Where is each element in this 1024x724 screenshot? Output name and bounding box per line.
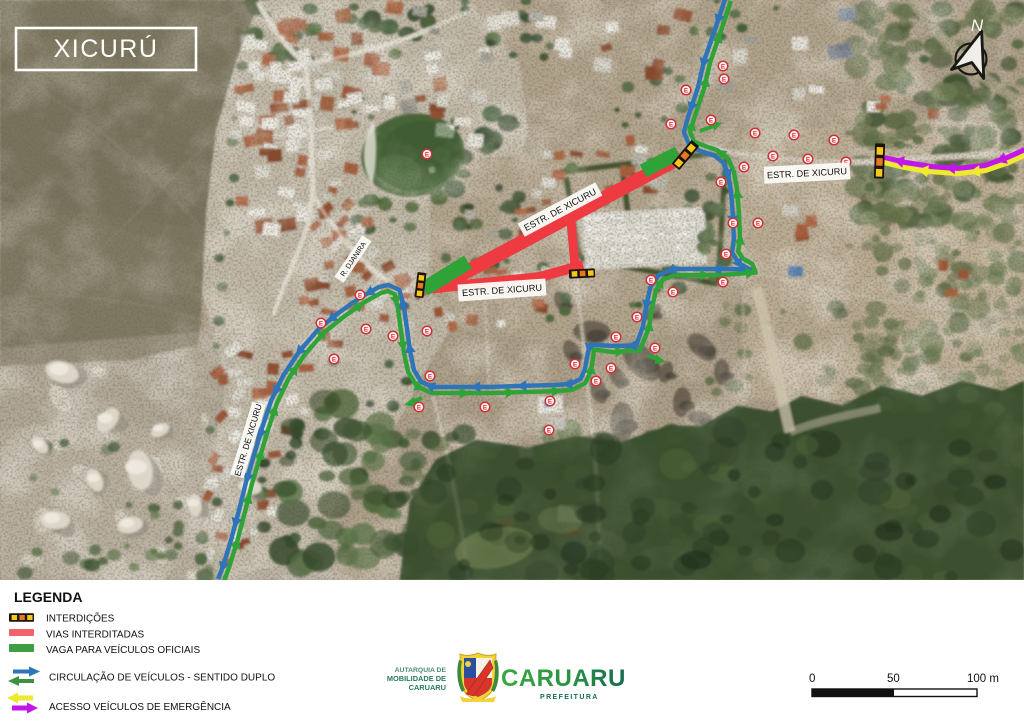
- svg-text:E: E: [609, 365, 614, 372]
- svg-text:E: E: [724, 251, 729, 258]
- svg-text:E: E: [332, 356, 337, 363]
- svg-text:MOBILIDADE DE: MOBILIDADE DE: [387, 674, 446, 683]
- svg-text:E: E: [731, 220, 736, 227]
- svg-text:E: E: [635, 314, 640, 321]
- svg-text:E: E: [364, 326, 369, 333]
- svg-text:INTERDIÇÕES: INTERDIÇÕES: [46, 612, 115, 625]
- svg-text:E: E: [806, 156, 811, 163]
- svg-text:CARUARU: CARUARU: [501, 665, 626, 692]
- svg-text:E: E: [653, 345, 658, 352]
- svg-text:E: E: [719, 179, 724, 186]
- svg-text:E: E: [428, 373, 433, 380]
- svg-text:AUTARQUIA DE: AUTARQUIA DE: [395, 667, 447, 674]
- svg-text:E: E: [753, 130, 758, 137]
- svg-text:XICURÚ: XICURÚ: [54, 34, 159, 63]
- svg-text:E: E: [792, 132, 797, 139]
- svg-text:E: E: [671, 289, 676, 296]
- svg-text:E: E: [832, 137, 837, 144]
- svg-text:E: E: [721, 63, 726, 70]
- svg-text:ACESSO VEÍCULOS DE EMERGÊNCIA: ACESSO VEÍCULOS DE EMERGÊNCIA: [49, 700, 231, 713]
- svg-text:E: E: [391, 333, 396, 340]
- svg-text:E: E: [548, 398, 553, 405]
- svg-text:E: E: [771, 153, 776, 160]
- svg-text:0: 0: [809, 673, 815, 685]
- svg-text:E: E: [756, 220, 761, 227]
- svg-text:100 m: 100 m: [967, 673, 999, 685]
- svg-text:LEGENDA: LEGENDA: [14, 589, 82, 605]
- svg-text:E: E: [594, 378, 599, 385]
- svg-text:E: E: [721, 279, 726, 286]
- svg-text:E: E: [742, 164, 747, 171]
- svg-text:PREFEITURA: PREFEITURA: [540, 694, 599, 701]
- svg-text:E: E: [709, 117, 714, 124]
- svg-text:E: E: [547, 427, 552, 434]
- svg-text:E: E: [573, 361, 578, 368]
- svg-text:CARUARU: CARUARU: [409, 683, 446, 692]
- svg-text:E: E: [649, 277, 654, 284]
- svg-text:E: E: [722, 76, 727, 83]
- svg-text:E: E: [425, 151, 430, 158]
- svg-text:E: E: [319, 320, 324, 327]
- svg-text:CIRCULAÇÃO DE VEÍCULOS - SENTI: CIRCULAÇÃO DE VEÍCULOS - SENTIDO DUPLO: [49, 671, 275, 684]
- svg-text:E: E: [483, 404, 488, 411]
- svg-text:E: E: [684, 87, 689, 94]
- svg-text:E: E: [669, 121, 674, 128]
- svg-text:50: 50: [887, 673, 900, 685]
- svg-text:E: E: [614, 334, 619, 341]
- svg-text:E: E: [358, 292, 363, 299]
- svg-text:E: E: [417, 404, 422, 411]
- svg-text:VIAS INTERDITADAS: VIAS INTERDITADAS: [46, 630, 144, 641]
- svg-text:N: N: [971, 16, 984, 35]
- svg-text:VAGA PARA VEÍCULOS OFICIAIS: VAGA PARA VEÍCULOS OFICIAIS: [46, 643, 200, 656]
- svg-text:E: E: [425, 328, 430, 335]
